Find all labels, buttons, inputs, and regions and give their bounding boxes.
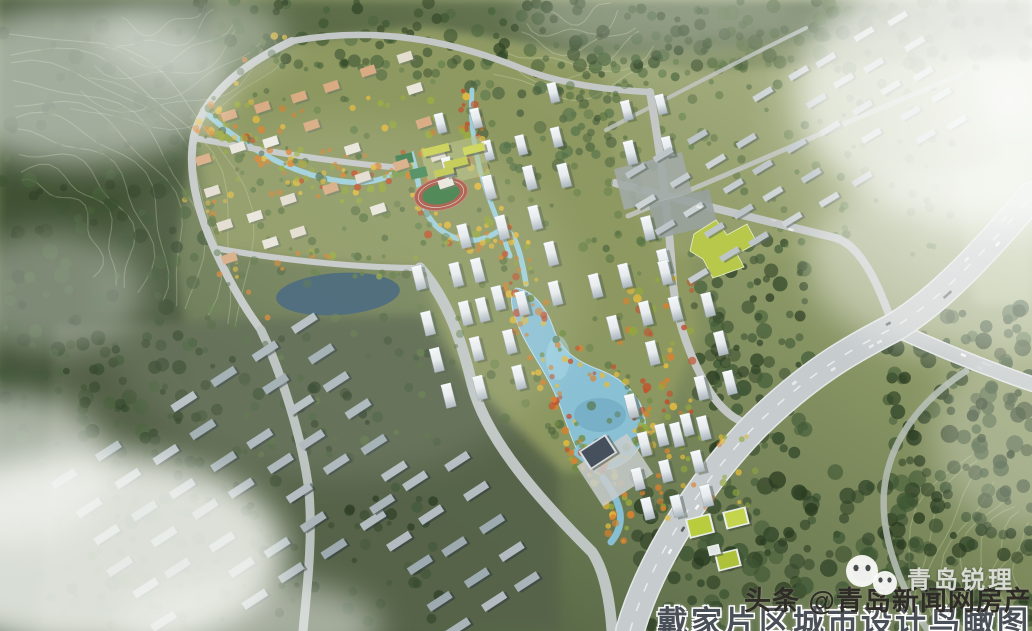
- publisher-logo: 青岛锐理: [843, 554, 1015, 600]
- city-masterplan-scene: [0, 0, 1032, 631]
- publisher-logo-text: 青岛锐理: [907, 560, 1015, 595]
- aerial-rendering: 戴家片区城市设计鸟瞰图 头条 @青岛新闻网房产 青岛锐理: [0, 0, 1032, 631]
- wechat-icon: [843, 554, 901, 600]
